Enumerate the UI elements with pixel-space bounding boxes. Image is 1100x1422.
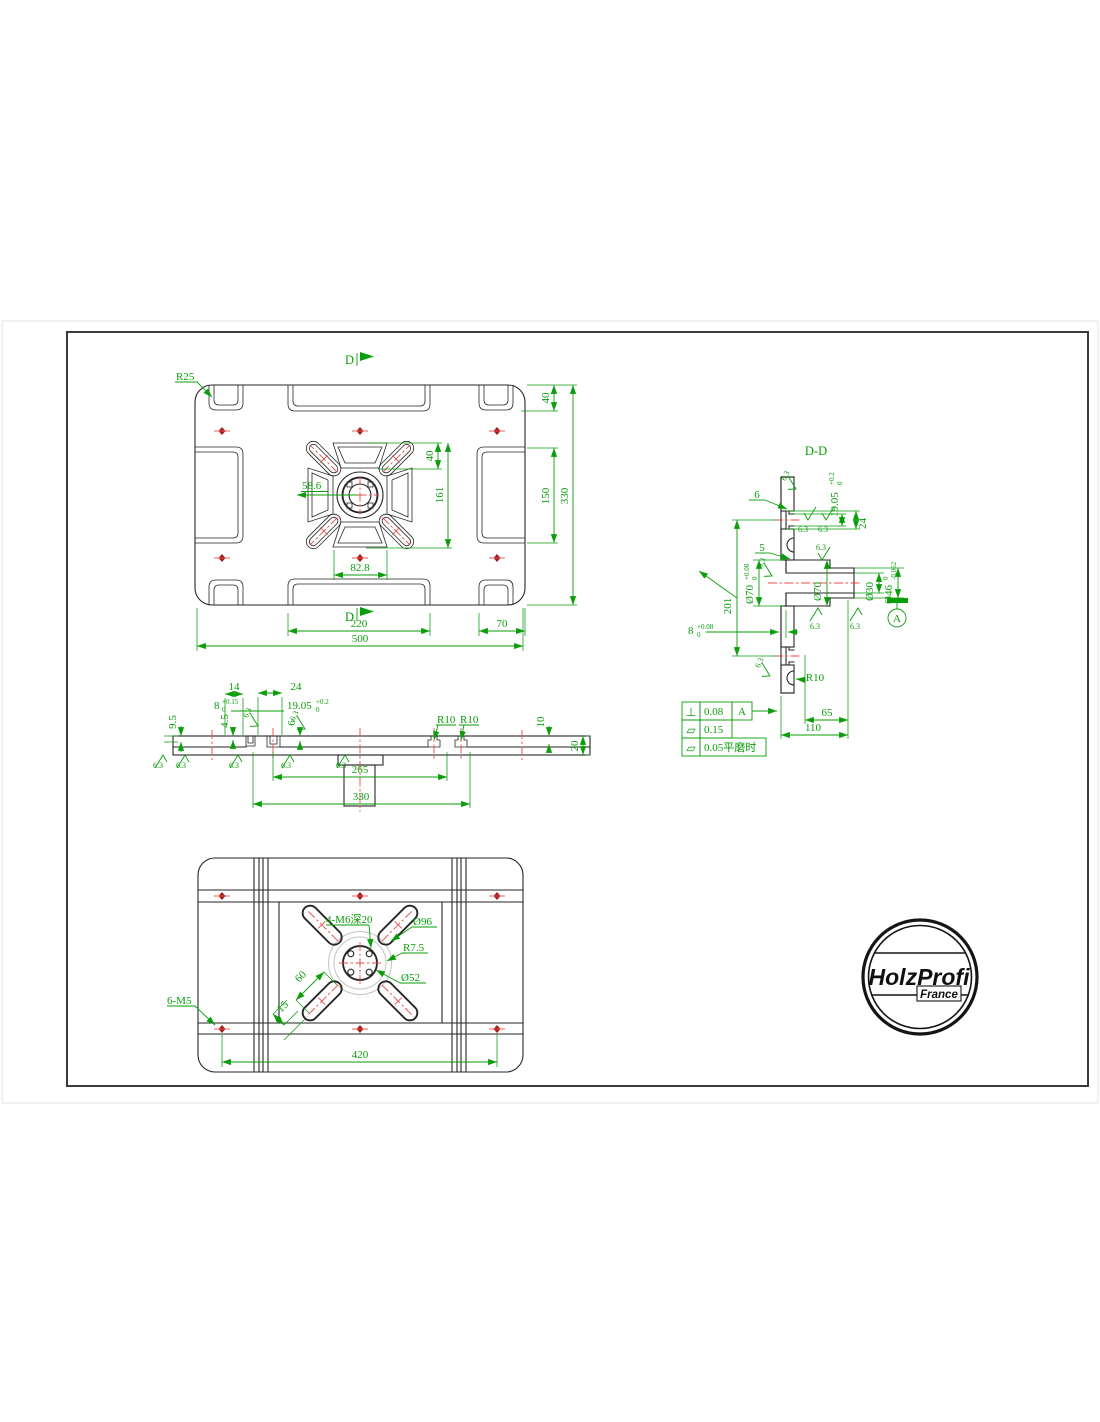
- side-view-outline: [173, 736, 590, 806]
- dim-40-inner: 40: [424, 450, 436, 462]
- surface-finish-icon: 6.3: [229, 755, 242, 770]
- dim-20: 20: [569, 740, 581, 752]
- side-view: 14 24 8 +0.15 0 19.05 +0.2 0 9.5 4.5 6 R…: [153, 681, 590, 812]
- drawing-sheet: R25 D D 58.6 82.8 40 161 40 150 330 220: [0, 0, 1100, 1422]
- spigot-upper: 0: [882, 576, 890, 580]
- section-title: D-D: [805, 444, 827, 458]
- finish-value: 6.3: [818, 525, 828, 534]
- finish-value: 6.3: [281, 761, 291, 770]
- thread-note-m6: 4-M6深20: [326, 913, 373, 926]
- surface-finish-icon: 6.3: [816, 543, 830, 560]
- groove-arc-lower: [787, 671, 794, 685]
- perpendicularity-icon: ⊥: [686, 705, 696, 719]
- finish-value: 6.3: [229, 761, 239, 770]
- surface-finish-icon: 6.3: [176, 755, 189, 770]
- dim-65: 65: [822, 707, 834, 719]
- dim-110: 110: [805, 722, 822, 734]
- counterbore-lower: 0: [751, 576, 759, 580]
- radius-r10-b: R10: [460, 714, 479, 726]
- dim-330: 330: [353, 791, 370, 803]
- slot8-nom: 8: [214, 700, 220, 712]
- finish-value: 6.3: [753, 656, 766, 669]
- dim-15: 15: [275, 998, 292, 1015]
- bottom-view-channels: [198, 858, 523, 1072]
- finish-value: 6.3: [755, 556, 768, 569]
- counterbore-nom: Ø70: [744, 585, 756, 604]
- surface-finish-icon: 6.3: [750, 656, 775, 679]
- spigot-lower: -0.062: [890, 561, 898, 580]
- section-letter-top: D: [345, 353, 354, 367]
- dim-9-5: 9.5: [167, 715, 179, 729]
- finish-value: 6.3: [850, 622, 860, 631]
- slot19-lower: 0: [316, 706, 320, 714]
- dim-330: 330: [559, 487, 571, 504]
- finish-value: 6.3: [336, 761, 346, 770]
- dim-60: 60: [293, 968, 310, 985]
- finish-value: 6.3: [816, 543, 826, 552]
- dim-220: 220: [351, 618, 368, 630]
- radius-r10: R10: [806, 672, 825, 684]
- slot-width-upper: +0.2: [828, 472, 836, 485]
- surface-finish-icon: 6.3: [810, 608, 822, 631]
- flatness-icon: ▱: [686, 741, 696, 755]
- surface-finish-icon: 6.3: [238, 706, 263, 729]
- dim-10: 10: [535, 716, 547, 728]
- dim-4-5: 4.5: [219, 714, 231, 728]
- logo-country-text: France: [920, 989, 958, 1001]
- slot-width-lower: 0: [836, 481, 844, 485]
- dim-40-right: 40: [540, 392, 552, 404]
- flatness-icon: ▱: [686, 723, 696, 737]
- dim-24: 24: [857, 518, 869, 530]
- side-view-dims: 14 24 8 +0.15 0 19.05 +0.2 0 9.5 4.5 6 R…: [164, 681, 590, 808]
- dia-52-label: Ø52: [401, 972, 420, 984]
- groove-arc-upper: [787, 538, 794, 552]
- finish-value: 6.3: [176, 761, 186, 770]
- dim-58-6: 58.6: [302, 480, 322, 492]
- section-arrow-top: [360, 352, 374, 361]
- finish-value: 6.3: [798, 525, 808, 534]
- slot19-nom: 19.05: [287, 700, 312, 712]
- depth-8-upper: +0.08: [697, 623, 714, 631]
- depth-8-lower: 0: [697, 631, 701, 639]
- tolerance-datum-ref: A: [738, 706, 746, 718]
- finish-value: 6.3: [810, 622, 820, 631]
- dim-161: 161: [434, 487, 446, 504]
- depth-8-nom: 8: [688, 625, 694, 637]
- surface-finish-icon: 6.3: [281, 755, 294, 770]
- counterbore-upper: +0.08: [743, 563, 751, 580]
- radius-r10-a: R10: [437, 714, 456, 726]
- dim-265: 265: [352, 764, 369, 776]
- dia-96-label: Ø96: [413, 916, 432, 928]
- tolerance-value: 0.15: [704, 724, 724, 736]
- surface-finish-icon: 6.3: [153, 755, 167, 770]
- brand-logo: HolzProfi France: [863, 920, 977, 1034]
- tolerance-table: ⊥ 0.08 A ▱ 0.15 ▱ 0.05平磨时: [682, 702, 777, 756]
- tolerance-value: 0.08: [704, 706, 724, 718]
- side-view-finish-marks: 6.3 6.3 6.3 6.3 6.3 6.3 6.3: [153, 706, 349, 770]
- thread-note-m5: 6-M5: [167, 995, 192, 1007]
- dim-500: 500: [352, 633, 369, 645]
- bottom-view-dims: 4-M6深20 Ø96 R7.5 Ø52 60 15 6-M5 420: [167, 913, 497, 1067]
- section-dd-view: D-D 6 19.05 +0.2 0 24 5 201 Ø70 +0.08 0 …: [682, 444, 908, 756]
- hub-od: Ø70: [812, 582, 824, 601]
- tolerance-value: 0.05平磨时: [704, 741, 756, 754]
- radius-r75-label: R7.5: [403, 942, 425, 954]
- dim-70: 70: [497, 618, 509, 630]
- surface-finish-icon: 6.3: [776, 469, 801, 492]
- corner-radius-label: R25: [176, 371, 195, 383]
- dim-150: 150: [540, 487, 552, 504]
- dim-14: 14: [229, 681, 241, 693]
- dim-24: 24: [291, 681, 303, 693]
- section-arrow-bottom: [360, 607, 374, 616]
- slot8-upper: +0.15: [222, 698, 239, 706]
- datum-letter: A: [893, 613, 901, 625]
- datum-bar: [887, 598, 908, 603]
- dim-82-8: 82.8: [350, 562, 370, 574]
- finish-value: 6.3: [153, 761, 163, 770]
- dim-420: 420: [352, 1049, 369, 1061]
- bottom-view: 4-M6深20 Ø96 R7.5 Ø52 60 15 6-M5 420: [167, 858, 523, 1072]
- dim-201: 201: [722, 598, 734, 615]
- top-view: R25 D D 58.6 82.8 40 161 40 150 330 220: [175, 352, 577, 651]
- slot8-lower: 0: [222, 706, 226, 714]
- slot19-upper: +0.2: [316, 698, 329, 706]
- dim-5: 5: [759, 542, 765, 554]
- slot-width-nom: 19.05: [829, 492, 841, 517]
- dim-6: 6: [754, 489, 760, 501]
- surface-finish-icon: 6.3: [850, 608, 862, 631]
- section-dims: D-D 6 19.05 +0.2 0 24 5 201 Ø70 +0.08 0 …: [688, 444, 908, 739]
